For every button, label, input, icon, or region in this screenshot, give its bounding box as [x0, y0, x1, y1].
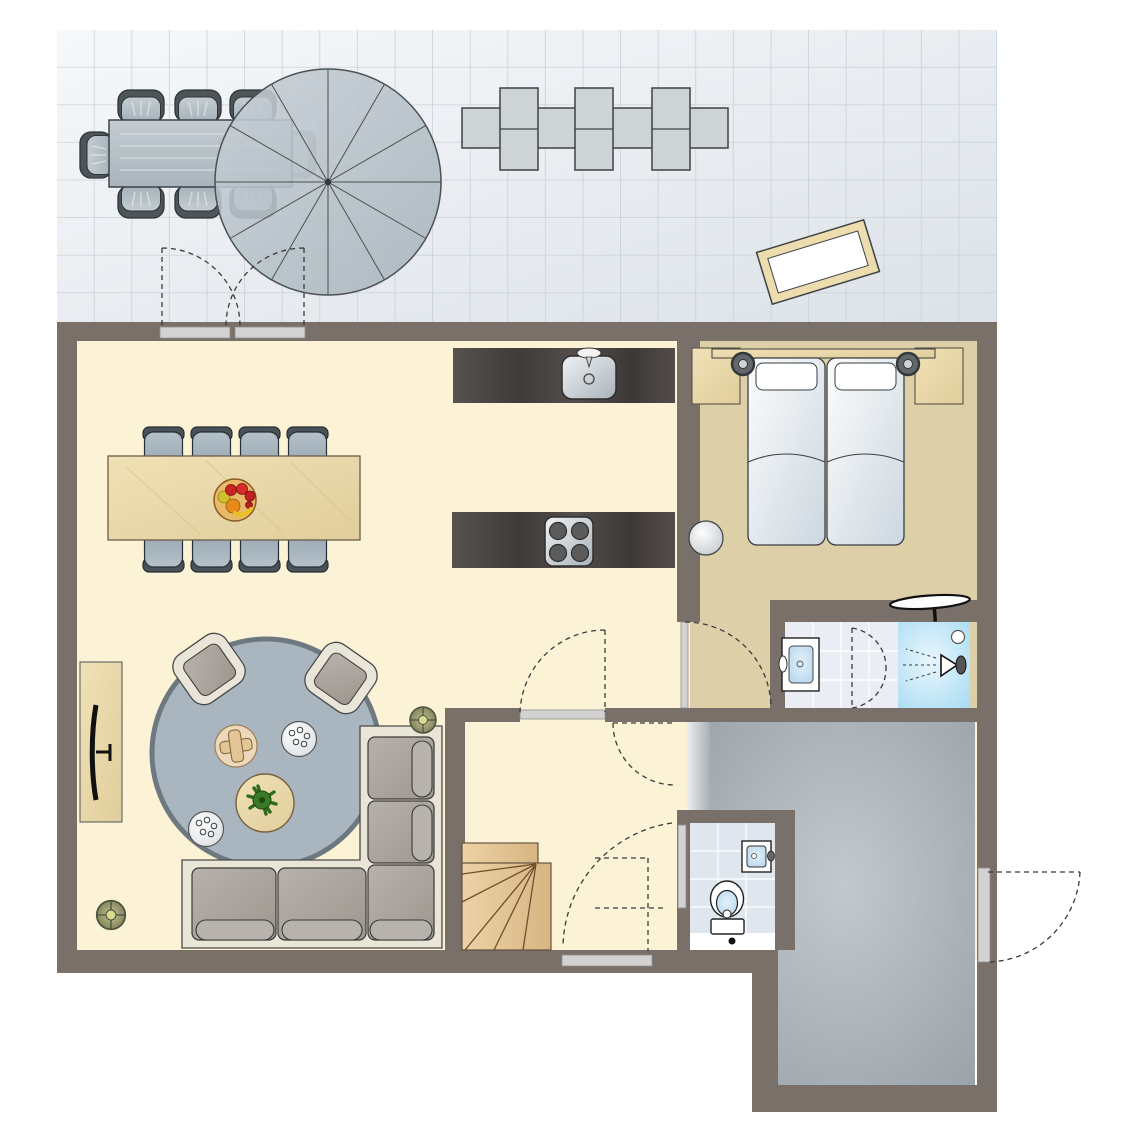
sofa-roll	[282, 920, 362, 940]
burner	[572, 545, 589, 562]
kitchen-sink	[562, 348, 616, 399]
staircase	[462, 843, 551, 950]
potted-plant-corner	[97, 901, 126, 930]
front-door	[978, 868, 990, 962]
bedside-lamp	[897, 353, 919, 375]
round-stool	[689, 521, 723, 555]
burner	[572, 523, 589, 540]
tv-cabinet	[80, 662, 122, 822]
bedside-lamp	[732, 353, 754, 375]
floor-plan	[0, 0, 1145, 1145]
terrace	[57, 30, 997, 322]
toilet-tank	[711, 919, 744, 934]
faucet	[577, 348, 601, 358]
hallway-window	[562, 955, 652, 966]
burner	[550, 545, 567, 562]
outdoor-chair	[118, 90, 164, 124]
sofa-roll	[196, 920, 274, 940]
sun-loungers	[462, 88, 728, 170]
coffee-table	[236, 774, 294, 832]
patio-door-leaf	[235, 327, 305, 338]
basin-faucet	[768, 851, 775, 861]
vanity-basin	[789, 646, 813, 683]
outdoor-chair	[175, 90, 221, 124]
shower-drain	[952, 631, 965, 644]
living-room-door	[520, 710, 605, 719]
stove	[545, 517, 593, 566]
sofa-roll	[412, 805, 432, 861]
outdoor-chair	[118, 184, 164, 218]
threshold-step	[687, 722, 710, 812]
burner	[550, 523, 567, 540]
side-tray	[282, 722, 317, 757]
patio-door-leaf	[160, 327, 230, 338]
bed-mattress	[827, 358, 904, 545]
outdoor-chair	[175, 184, 221, 218]
fruit-bowl	[214, 479, 256, 521]
shower-mount	[956, 656, 966, 674]
side-tray	[189, 812, 224, 847]
front-door-swing	[986, 872, 1080, 962]
toilet-door	[678, 825, 686, 908]
sofa-roll	[370, 920, 432, 940]
bed-mattress	[748, 358, 825, 545]
potted-plant-top	[410, 707, 436, 733]
shelf-dot	[729, 938, 736, 945]
bedroom-door	[681, 622, 688, 708]
parasol	[215, 69, 441, 295]
floor-plan-canvas	[0, 0, 1145, 1145]
sofa-roll	[412, 741, 432, 797]
parasol-pole	[325, 179, 331, 185]
vanity-faucet	[779, 656, 787, 672]
